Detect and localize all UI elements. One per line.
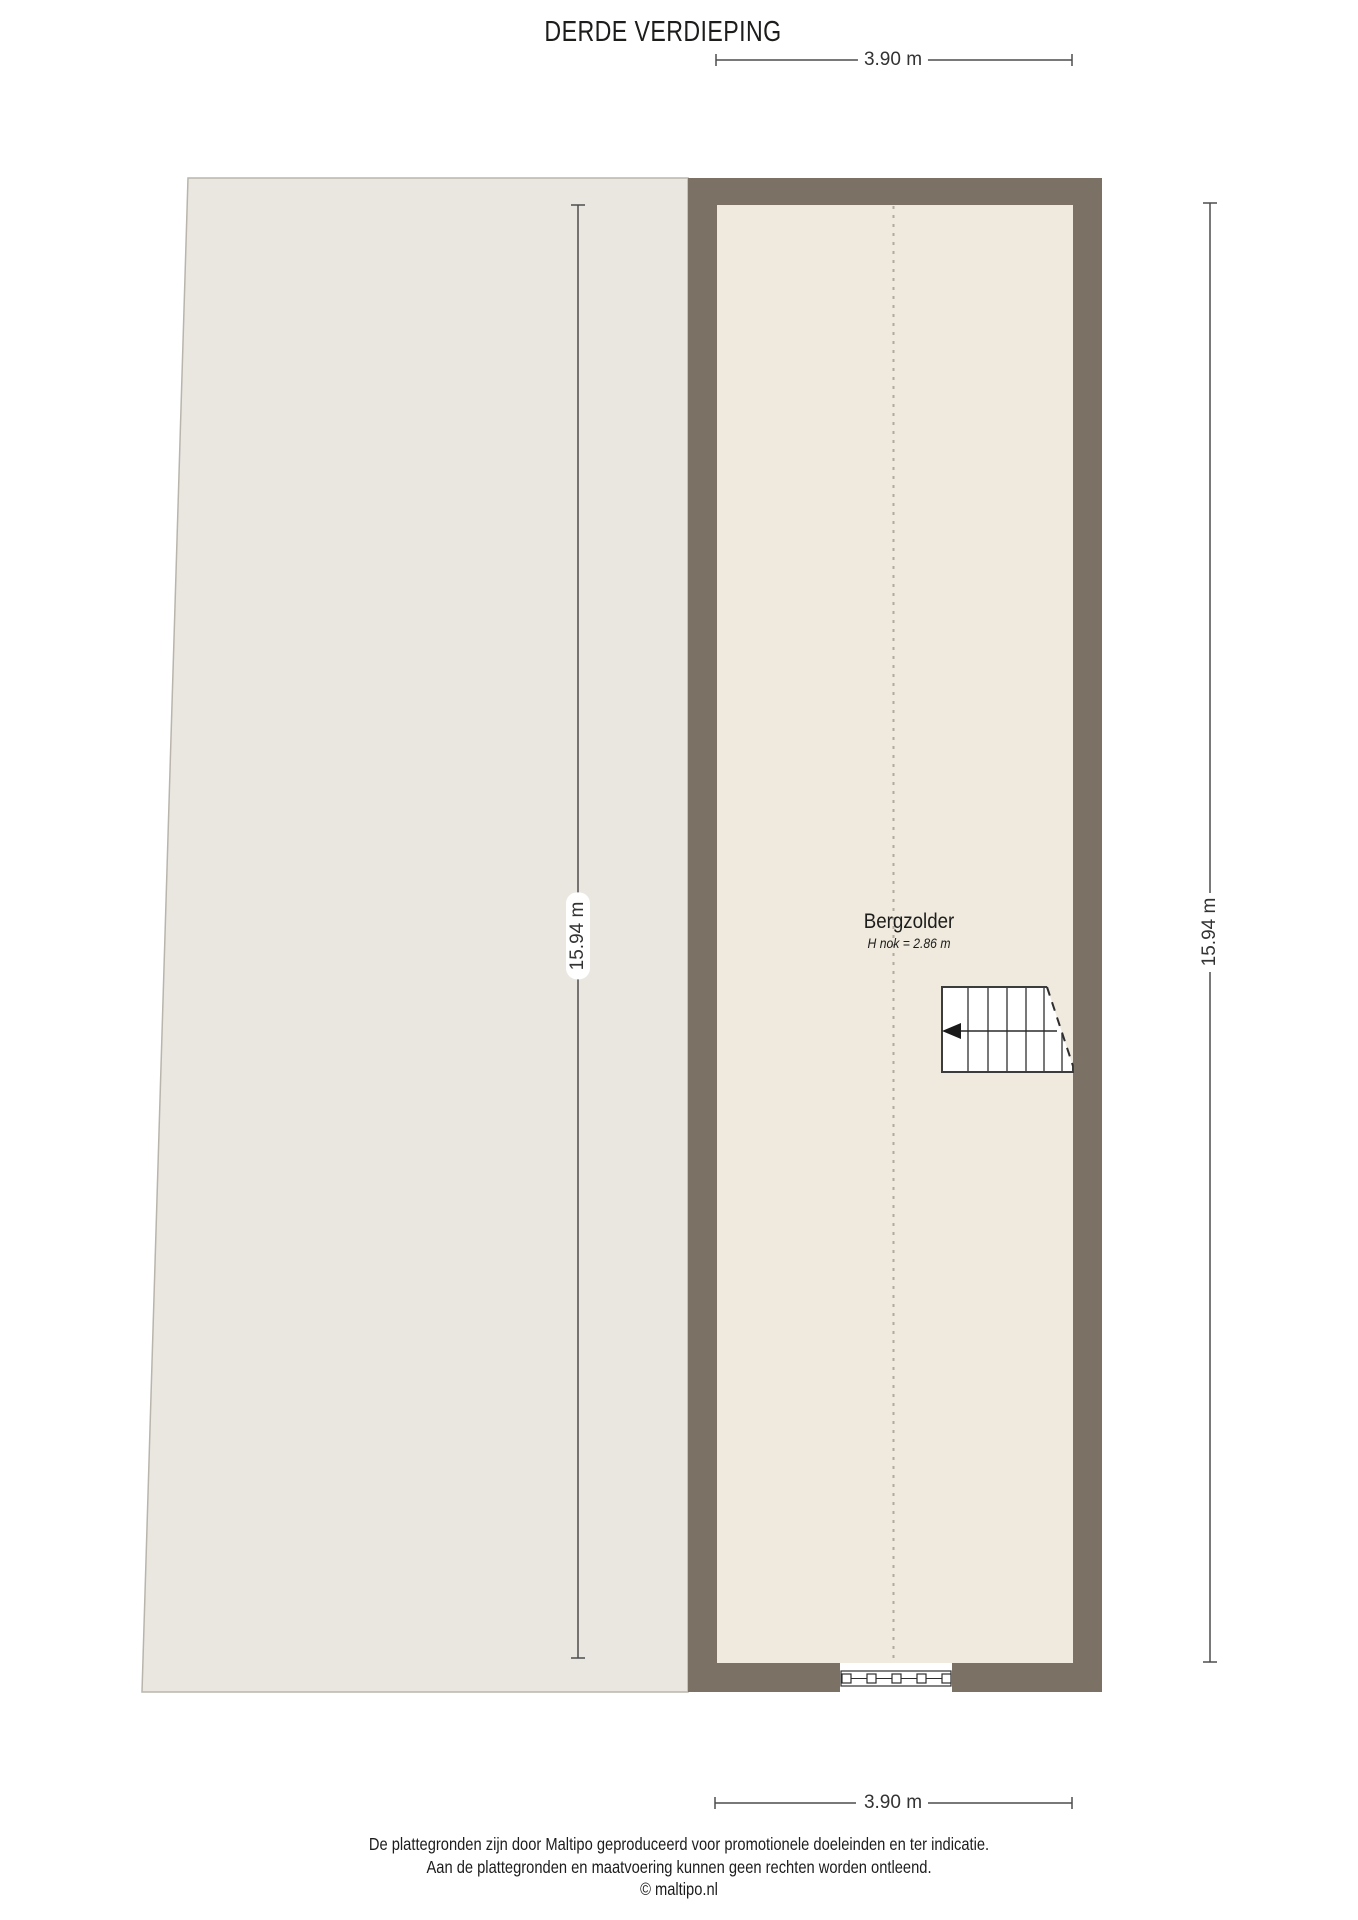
disclaimer-line-2: Aan de plattegronden en maatvoering kunn… (369, 1856, 989, 1879)
dimension-bottom-label: 3.90 m (858, 1792, 928, 1814)
dimension-right-label: 15.94 m (1198, 889, 1222, 976)
window-post (917, 1674, 926, 1683)
window-post (867, 1674, 876, 1683)
dimension-top-label: 3.90 m (858, 49, 928, 71)
disclaimer-line-1: De plattegronden zijn door Maltipo gepro… (369, 1833, 989, 1856)
room-name: Bergzolder (864, 911, 954, 933)
window-post (842, 1674, 851, 1683)
window-icon (840, 1663, 952, 1692)
window-post (892, 1674, 901, 1683)
room-label: Bergzolder H nok = 2.86 m (864, 911, 954, 950)
window-post (942, 1674, 951, 1683)
disclaimer: De plattegronden zijn door Maltipo gepro… (369, 1833, 989, 1901)
copyright: © maltipo.nl (369, 1878, 989, 1901)
roof-surface (142, 178, 688, 1692)
floor-plan-drawing (0, 0, 1358, 1920)
page-title: DERDE VERDIEPING (544, 16, 781, 49)
floor-plan-page: DERDE VERDIEPING 3.90 m 3.90 m 15.94 m 1… (0, 0, 1358, 1920)
room-ridge-height-note: H nok = 2.86 m (864, 936, 954, 950)
dimension-left-label: 15.94 m (566, 893, 590, 980)
